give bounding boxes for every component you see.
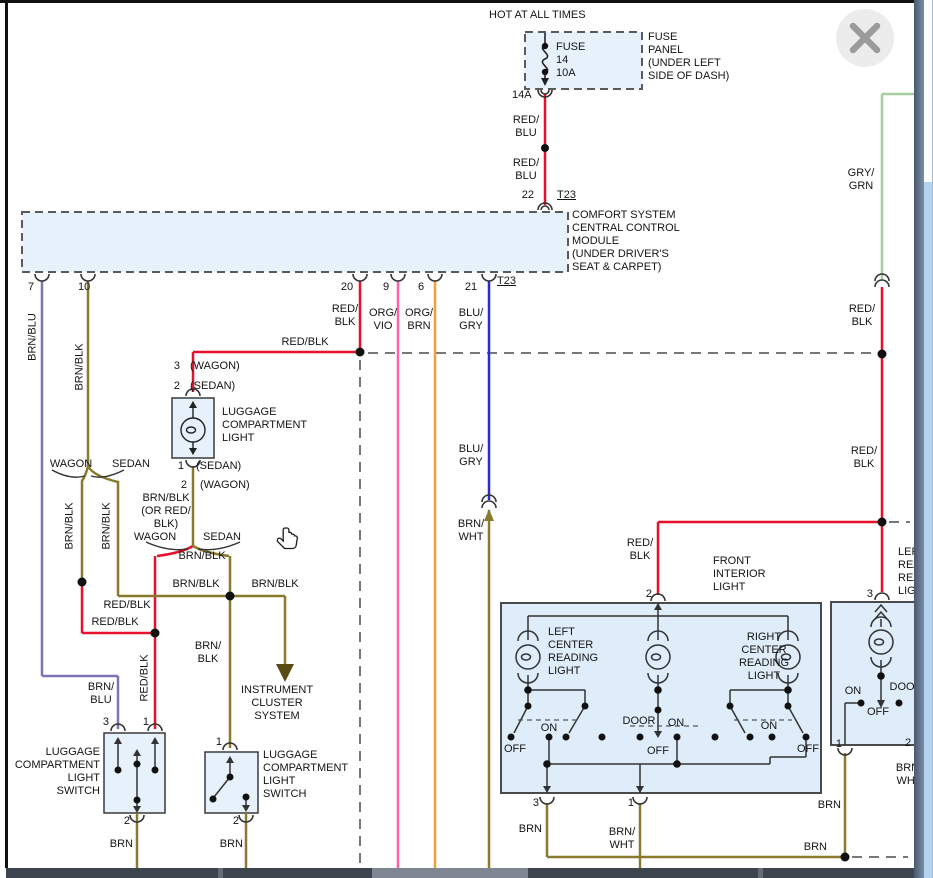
instrument-cluster-arrow: [276, 664, 294, 682]
scrollbar-thumb[interactable]: [924, 182, 932, 878]
wire-gry-grn: [882, 94, 915, 279]
close-icon: [836, 9, 894, 67]
split-brackets: [52, 470, 240, 550]
hand-cursor-icon: [276, 526, 300, 554]
ccm-box: [22, 212, 568, 272]
component-boxes: [22, 32, 931, 813]
close-button[interactable]: [836, 9, 894, 67]
page-border-left: [5, 0, 8, 868]
page-border-top: [0, 0, 914, 3]
wiring-diagram-canvas: [0, 0, 933, 878]
bottom-bar-divider: [218, 868, 223, 878]
bottom-bar-divider: [758, 868, 763, 878]
bottom-bar-corner: [0, 868, 6, 878]
brn-wht-up-arrow: [484, 509, 494, 521]
bottom-bar-segment: [372, 868, 528, 878]
page-bottom-bar: [0, 868, 933, 878]
vertical-scrollbar[interactable]: [914, 0, 933, 878]
scrollbar-track[interactable]: [924, 0, 932, 182]
wire-brn-blu: [42, 281, 118, 729]
wiring-diagram-viewer: HOT AT ALL TIMESFUSE1410AFUSE PANEL (UND…: [0, 0, 933, 878]
